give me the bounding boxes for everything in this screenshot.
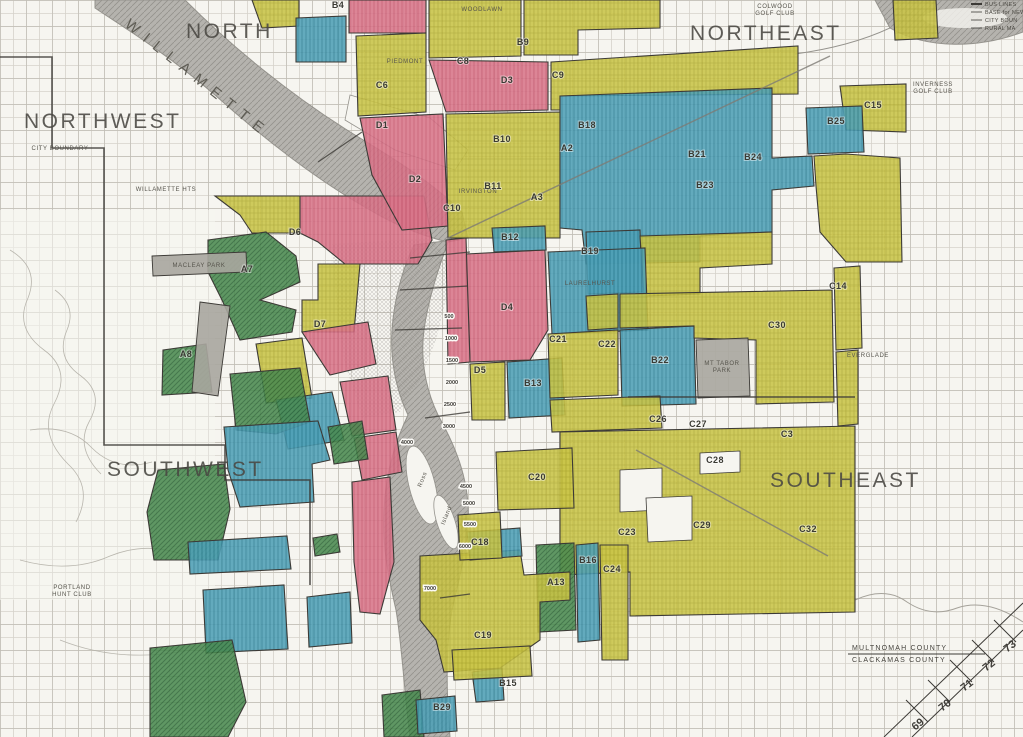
zone-label-B22: B22: [651, 355, 669, 365]
zone-label-C28: C28: [706, 455, 724, 465]
region-label-southwest: SOUTHWEST: [107, 458, 264, 481]
zone-C-C6: [356, 33, 426, 116]
zone-label-C30: C30: [768, 320, 786, 330]
block-number: 5000: [463, 501, 475, 507]
zone-C: [836, 350, 858, 426]
zone-label-B4: B4: [332, 0, 344, 10]
place-label: LAURELHURST: [565, 281, 616, 287]
zone-A: [328, 421, 368, 464]
block-number: 4000: [401, 440, 413, 446]
county-label-multnomah: MULTNOMAH COUNTY: [852, 645, 947, 652]
zone-label-D6: D6: [289, 227, 301, 237]
zone-label-B16: B16: [579, 555, 597, 565]
zone-label-A2: A2: [561, 143, 573, 153]
place-label: COLWOOD: [757, 4, 792, 10]
zone-C: [550, 396, 662, 432]
county-label-clackamas: CLACKAMAS COUNTY: [852, 657, 946, 664]
zone-label-C21: C21: [549, 334, 567, 344]
zone-label-B23: B23: [696, 180, 714, 190]
zone-label-B19: B19: [581, 246, 599, 256]
place-label: GOLF CLUB: [913, 89, 952, 95]
zone-label-D4: D4: [501, 302, 513, 312]
zone-label-C15: C15: [864, 100, 882, 110]
map-canvas: NORTHNORTHEASTNORTHWESTSOUTHWESTSOUTHEAS…: [0, 0, 1023, 737]
place-label: PIEDMONT: [387, 59, 423, 65]
zone-B: [188, 536, 291, 574]
zone-label-B18: B18: [578, 120, 596, 130]
block-number: 2000: [446, 380, 458, 386]
zone-D: [349, 0, 426, 33]
place-label: MACLEAY PARK: [173, 263, 226, 269]
zone-label-A7: A7: [241, 264, 253, 274]
zone-label-D1: D1: [376, 120, 388, 130]
zone-label-B24: B24: [744, 152, 762, 162]
block-number: 1500: [446, 358, 458, 364]
zone-C-C18: [458, 512, 502, 560]
block-number: 5500: [464, 522, 476, 528]
zone-label-C23: C23: [618, 527, 636, 537]
zone-label-B25: B25: [827, 116, 845, 126]
zone-A: [313, 534, 340, 556]
block-number: 500: [444, 314, 453, 320]
zone-label-A8: A8: [180, 349, 192, 359]
zone-label-C26: C26: [649, 414, 667, 424]
zone-label-C3: C3: [781, 429, 793, 439]
zone-D: [446, 238, 470, 364]
zone-label-C24: C24: [603, 564, 621, 574]
zone-B-B12: [492, 226, 546, 252]
legend-item: CITY BOUN: [985, 18, 1018, 24]
zone-label-B9: B9: [517, 37, 529, 47]
zone-C: [893, 0, 938, 40]
zone-label-B21: B21: [688, 149, 706, 159]
zone-C-C14: [834, 266, 862, 350]
place-label: INVERNESS: [913, 82, 953, 88]
block-number: 3000: [443, 424, 455, 430]
region-label-northeast: NORTHEAST: [690, 22, 842, 45]
zone-label-C27: C27: [689, 419, 707, 429]
zone-B: [307, 592, 352, 647]
place-label: CITY BOUNDARY: [32, 146, 89, 152]
legend-item: BUS LINES: [985, 2, 1016, 8]
zone-label-C14: C14: [829, 281, 847, 291]
zone-label-D5: D5: [474, 365, 486, 375]
zone-label-C6: C6: [376, 80, 388, 90]
zone-label-C10: C10: [443, 203, 461, 213]
legend-item: RURAL MA: [985, 26, 1016, 32]
place-label: PORTLAND: [53, 585, 90, 591]
zone-A: [150, 640, 246, 737]
block-number: 6000: [459, 544, 471, 550]
zone-label-A3: A3: [531, 192, 543, 202]
zone-label-C20: C20: [528, 472, 546, 482]
zone-label-D3: D3: [501, 75, 513, 85]
place-label: EVERGLADE: [847, 353, 889, 359]
holc-security-map: NORTHNORTHEASTNORTHWESTSOUTHWESTSOUTHEAS…: [0, 0, 1023, 737]
zone-B-B22: [620, 326, 696, 406]
zone-label-B10: B10: [493, 134, 511, 144]
unshaded-area: [646, 496, 692, 542]
zone-label-C29: C29: [693, 520, 711, 530]
zone-label-B29: B29: [433, 702, 451, 712]
place-label: HUNT CLUB: [52, 592, 92, 598]
zone-C-C10: [446, 112, 560, 238]
block-number: 1000: [445, 336, 457, 342]
place-label: PARK: [713, 368, 731, 374]
zone-label-B13: B13: [524, 378, 542, 388]
zone-C: [586, 294, 618, 330]
zone-C-C24: [600, 545, 628, 660]
block-number: 4500: [460, 484, 472, 490]
region-label-north: NORTH: [186, 20, 273, 43]
zone-label-C18: C18: [471, 537, 489, 547]
zone-B-B4: [296, 16, 346, 62]
zone-label-C8: C8: [457, 56, 469, 66]
place-label: WILLAMETTE HTS: [136, 187, 196, 193]
zone-label-C9: C9: [552, 70, 564, 80]
zone-label-D2: D2: [409, 174, 421, 184]
region-label-southeast: SOUTHEAST: [770, 469, 921, 492]
zone-C: [452, 646, 532, 680]
zone-label-B12: B12: [501, 232, 519, 242]
zone-D-D3: [429, 60, 548, 112]
region-label-northwest: NORTHWEST: [24, 110, 181, 133]
block-number: 2500: [444, 402, 456, 408]
zone-label-A13: A13: [547, 577, 565, 587]
place-label: IRVINGTON: [459, 189, 498, 195]
place-label: MT TABOR: [704, 361, 739, 367]
place-label: WOODLAWN: [461, 7, 502, 13]
place-label: GOLF CLUB: [755, 11, 794, 17]
zone-B-B25: [806, 106, 864, 154]
zone-label-D7: D7: [314, 319, 326, 329]
zone-label-C22: C22: [598, 339, 616, 349]
zone-label-B15: B15: [499, 678, 517, 688]
legend-item: BASE for NEW: [985, 10, 1023, 16]
zone-label-C32: C32: [799, 524, 817, 534]
block-number: 7000: [424, 586, 436, 592]
zone-label-C19: C19: [474, 630, 492, 640]
